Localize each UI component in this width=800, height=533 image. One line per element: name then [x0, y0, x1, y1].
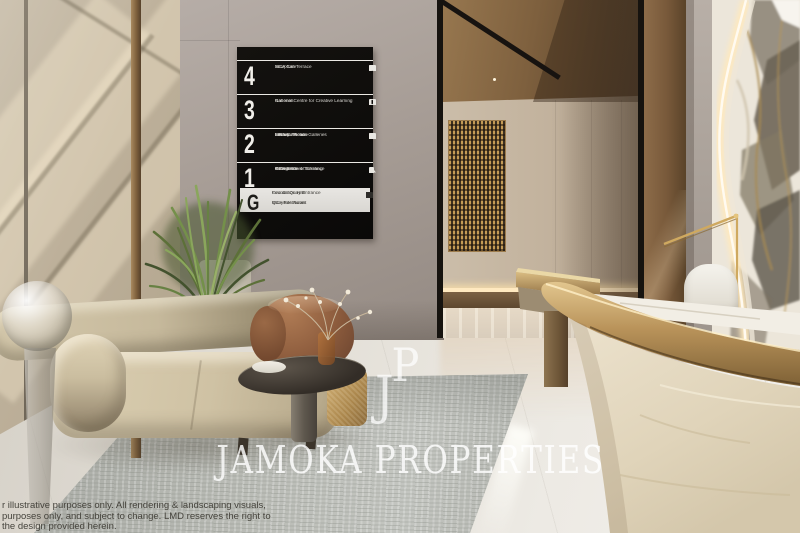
decor-dish: [252, 361, 286, 373]
level-number: 4: [244, 63, 254, 90]
info-icon: [369, 167, 374, 172]
lobby-rendering: 4 Sculpture Terrace MCA Cafe 3 Galleries…: [0, 0, 800, 533]
table-leg: [291, 390, 317, 442]
watermark-monogram: P J: [368, 342, 428, 446]
directory-row-level-4: 4 Sculpture Terrace MCA Cafe: [237, 60, 373, 94]
monogram-letter-j: J: [375, 366, 394, 426]
level-number: 3: [244, 97, 254, 124]
sofa-arm-cylinder: [50, 334, 126, 432]
destination-line: MCA Cafe: [275, 65, 296, 70]
disclaimer: r illustrative purposes only. All render…: [2, 501, 562, 533]
directory-row-level-2: 2 MCA Collection Galleries Lecture Theat…: [237, 128, 373, 162]
glass-ball-lamp: [2, 281, 72, 351]
downlight-icon: [493, 78, 496, 81]
accessible-icon: [369, 65, 375, 71]
flower-branches: [268, 282, 378, 342]
watermark-brand-name: JAMOKA PROPERTIES: [216, 438, 583, 482]
directory-row-level-3: 3 Galleries National Centre for Creative…: [237, 94, 373, 128]
destination-line: Quayside Room: [272, 201, 306, 206]
destination-line: MCA Store: [275, 167, 298, 172]
destination-line: Foundation Hall: [272, 191, 305, 196]
disclaimer-line-3: the design provided herein.: [2, 522, 562, 533]
escalator-icon: [366, 192, 370, 198]
panel-joint: [180, 40, 240, 41]
destination-line: National Centre for Creative Learning: [275, 99, 353, 104]
disclaimer-line-1: r illustrative purposes only. All render…: [2, 501, 562, 512]
accessible-icon: [369, 99, 375, 105]
reception-desks: [500, 255, 800, 533]
accessible-icon: [369, 133, 375, 139]
destination-line: Library: [275, 133, 289, 138]
monogram-letter-p: P: [392, 338, 420, 392]
gold-mesh-panel: [448, 120, 506, 252]
level-number: 2: [244, 131, 254, 158]
